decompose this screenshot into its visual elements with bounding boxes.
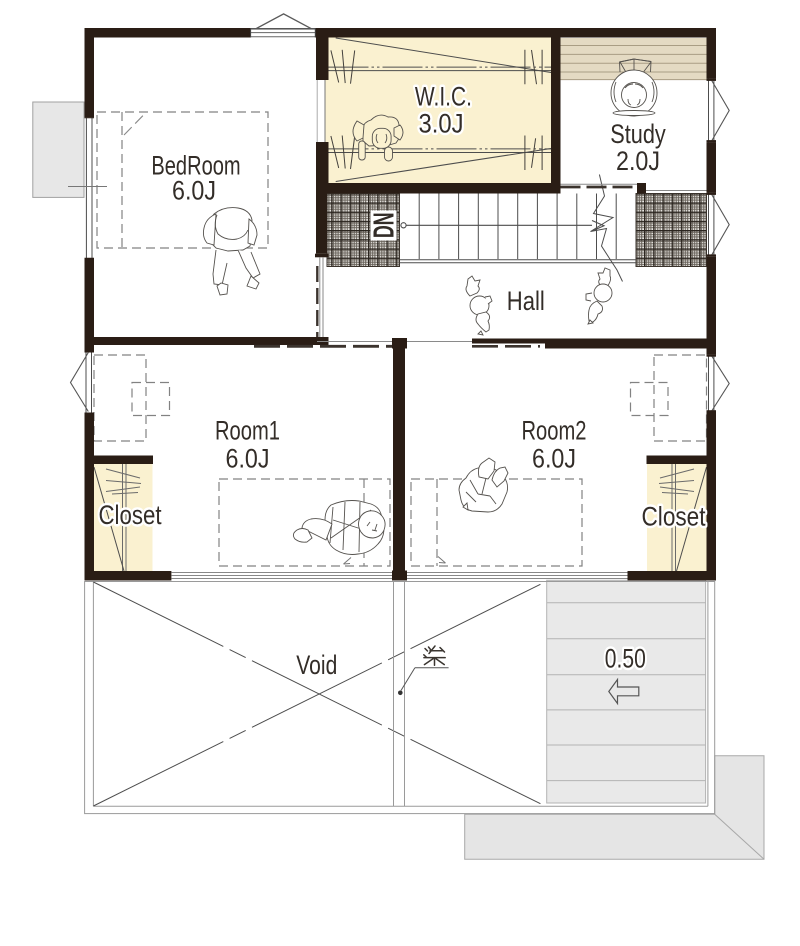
svg-text:3.0J: 3.0J (419, 109, 464, 139)
svg-text:Room1: Room1 (215, 416, 280, 446)
svg-text:6.0J: 6.0J (226, 444, 270, 474)
svg-text:Closet: Closet (99, 500, 162, 530)
svg-text:6.0J: 6.0J (532, 444, 576, 474)
svg-text:Room2: Room2 (522, 416, 587, 446)
svg-text:Void: Void (296, 650, 337, 680)
svg-text:0.50: 0.50 (605, 643, 646, 673)
svg-text:DN: DN (369, 213, 401, 239)
svg-text:Closet: Closet (642, 502, 706, 532)
svg-text:6.0J: 6.0J (172, 176, 216, 206)
svg-text:Study: Study (610, 119, 666, 149)
svg-text:Hall: Hall (507, 286, 545, 316)
svg-text:2.0J: 2.0J (616, 146, 660, 176)
svg-text:W.I.C.: W.I.C. (415, 82, 472, 112)
